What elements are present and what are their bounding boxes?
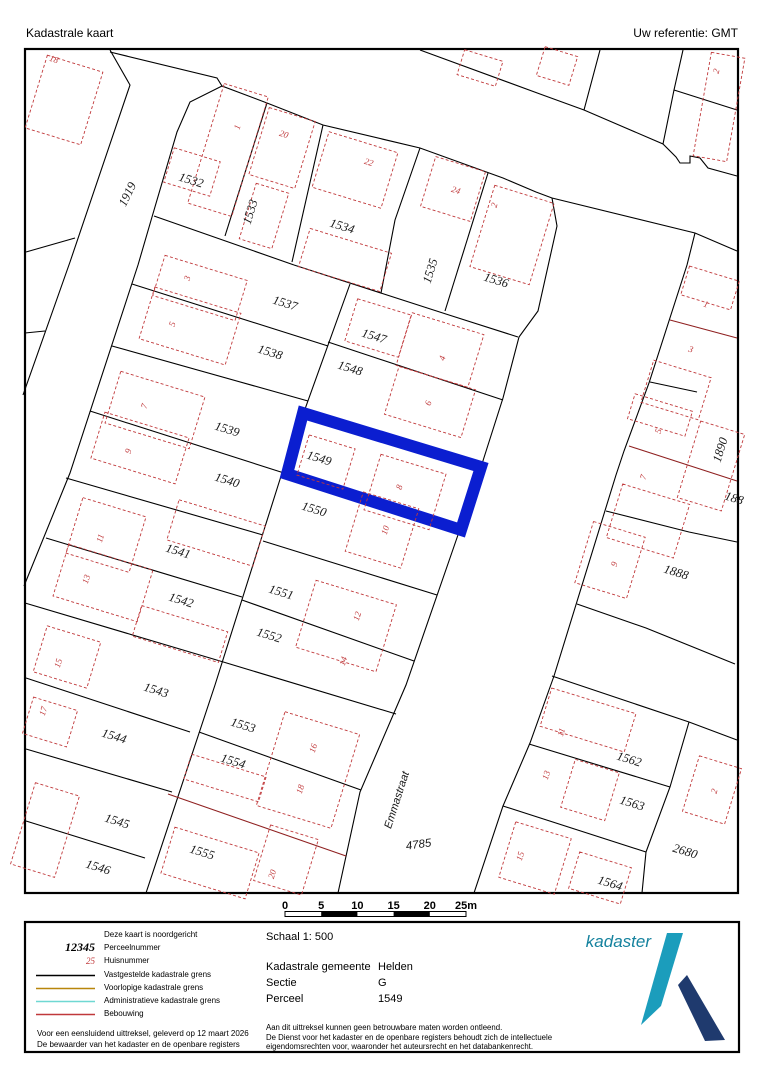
svg-text:0: 0 <box>282 900 288 912</box>
svg-text:G: G <box>378 977 387 989</box>
svg-text:25: 25 <box>86 956 96 966</box>
svg-text:Schaal 1: 500: Schaal 1: 500 <box>266 931 333 943</box>
svg-text:Perceel: Perceel <box>266 993 303 1005</box>
svg-text:10: 10 <box>351 900 363 912</box>
svg-text:Sectie: Sectie <box>266 977 297 989</box>
svg-text:1549: 1549 <box>378 993 402 1005</box>
svg-text:Kadastrale gemeente: Kadastrale gemeente <box>266 961 371 973</box>
svg-text:De Dienst voor het kadaster en: De Dienst voor het kadaster en de openba… <box>266 1033 552 1042</box>
svg-text:kadaster: kadaster <box>586 932 653 951</box>
svg-text:25m: 25m <box>455 900 477 912</box>
svg-text:Vastgestelde kadastrale grens: Vastgestelde kadastrale grens <box>104 970 211 979</box>
svg-text:eigendomsrechten voor, waarond: eigendomsrechten voor, waaronder het aut… <box>266 1042 533 1051</box>
svg-text:Kadastrale kaart: Kadastrale kaart <box>26 26 114 40</box>
svg-text:Voor een eensluidend uittrekse: Voor een eensluidend uittreksel, gelever… <box>37 1029 249 1038</box>
svg-text:Bebouwing: Bebouwing <box>104 1009 144 1018</box>
svg-text:5: 5 <box>318 900 324 912</box>
svg-text:Deze kaart is noordgericht: Deze kaart is noordgericht <box>104 930 198 939</box>
svg-text:Voorlopige kadastrale grens: Voorlopige kadastrale grens <box>104 983 203 992</box>
svg-text:20: 20 <box>424 900 436 912</box>
svg-text:Helden: Helden <box>378 961 413 973</box>
svg-text:15: 15 <box>387 900 399 912</box>
svg-text:12345: 12345 <box>65 940 95 954</box>
svg-text:Uw referentie: GMT: Uw referentie: GMT <box>633 26 738 40</box>
svg-text:Huisnummer: Huisnummer <box>104 956 150 965</box>
svg-text:Aan dit uittreksel kunnen geen: Aan dit uittreksel kunnen geen betrouwba… <box>266 1023 502 1032</box>
svg-text:De bewaarder van het kadaster: De bewaarder van het kadaster en de open… <box>37 1040 240 1049</box>
svg-text:Perceelnummer: Perceelnummer <box>104 943 161 952</box>
svg-text:Administratieve kadastrale gre: Administratieve kadastrale grens <box>104 996 220 1005</box>
